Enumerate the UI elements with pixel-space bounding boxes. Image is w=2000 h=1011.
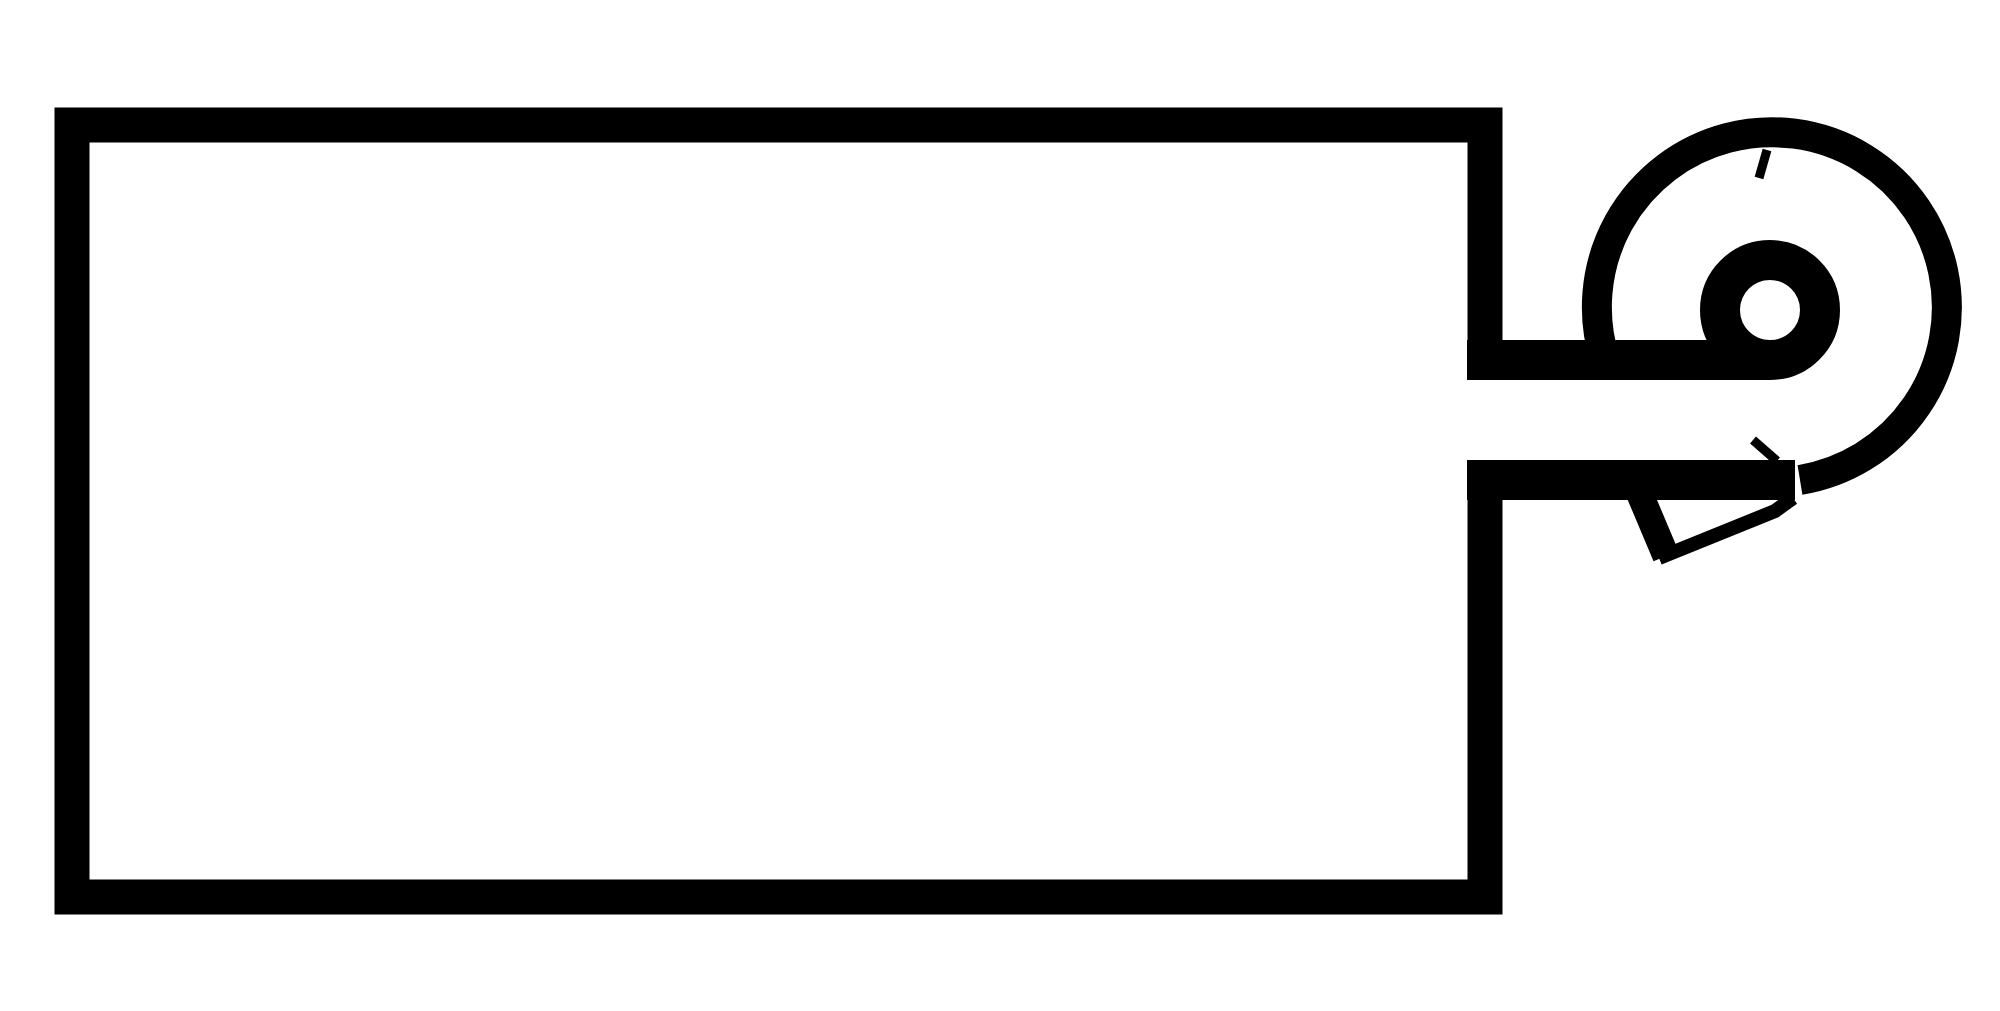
fan-scroll-outer-arc (1597, 132, 1947, 480)
fan-unit-diagram (0, 0, 2000, 1011)
fan-outlet-bottom-edge (1659, 498, 1793, 558)
duct-top-wall-and-fan-eye-circle (1467, 260, 1820, 360)
fan-outlet-left-side (1639, 492, 1666, 556)
diagram-ink-group (72, 125, 1947, 897)
ink-spur-junction (1753, 440, 1777, 461)
unit-box-outline (72, 125, 1485, 897)
ink-spur-top (1759, 150, 1767, 178)
drawing-canvas (0, 0, 2000, 1011)
